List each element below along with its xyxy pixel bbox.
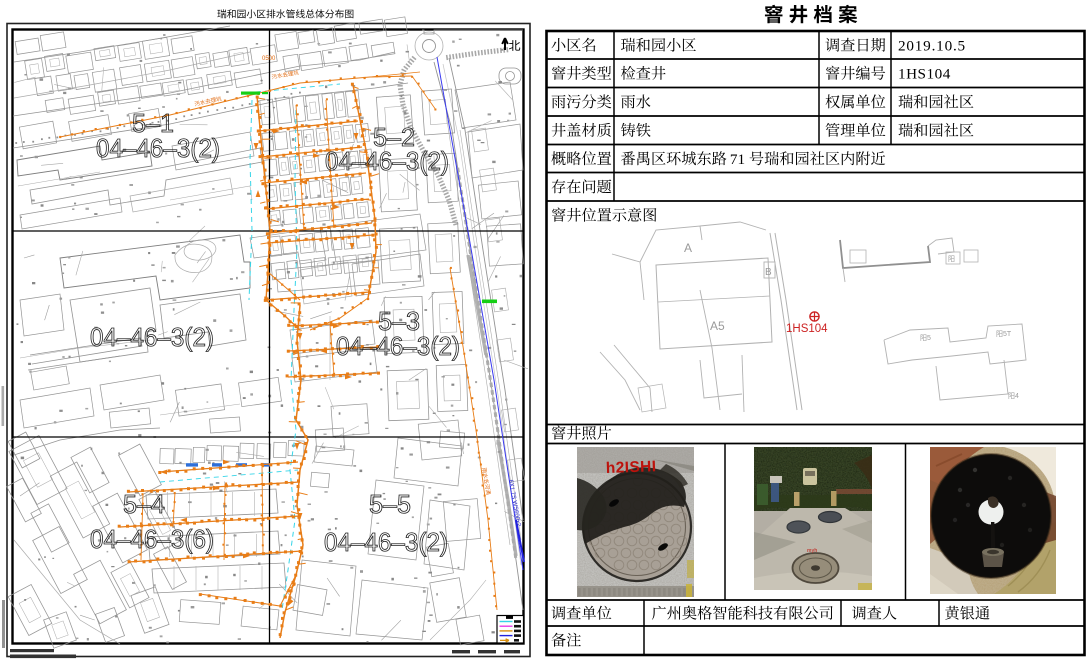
svg-text:1HS104: 1HS104 bbox=[898, 66, 951, 83]
svg-text:h2ISHI: h2ISHI bbox=[606, 458, 657, 477]
svg-text:2019.10.5: 2019.10.5 bbox=[898, 38, 966, 55]
svg-text:5–5: 5–5 bbox=[369, 489, 411, 519]
svg-text:阳4: 阳4 bbox=[1008, 391, 1019, 400]
svg-text:阳5T: 阳5T bbox=[996, 329, 1012, 338]
svg-text:04–46–3(2): 04–46–3(2) bbox=[324, 527, 448, 557]
svg-text:0500: 0500 bbox=[262, 56, 276, 62]
svg-text:A: A bbox=[684, 241, 692, 255]
svg-text:1HS104: 1HS104 bbox=[786, 323, 828, 335]
svg-text:5–4: 5–4 bbox=[123, 489, 165, 519]
svg-text:71: 71 bbox=[730, 151, 745, 168]
svg-text:04–46–3(2): 04–46–3(2) bbox=[90, 322, 214, 352]
svg-text:阳: 阳 bbox=[948, 254, 955, 263]
svg-text:A5: A5 bbox=[710, 319, 725, 333]
svg-text:阳5: 阳5 bbox=[920, 333, 931, 342]
svg-text:04–46–3(2): 04–46–3(2) bbox=[336, 331, 460, 361]
svg-text:04–46–3(2): 04–46–3(2) bbox=[96, 133, 220, 163]
svg-text:04–46–3(2): 04–46–3(2) bbox=[325, 146, 449, 176]
svg-text:myh: myh bbox=[807, 548, 817, 554]
svg-text:B: B bbox=[765, 267, 772, 278]
svg-text:04–46–3(6): 04–46–3(6) bbox=[90, 524, 214, 554]
